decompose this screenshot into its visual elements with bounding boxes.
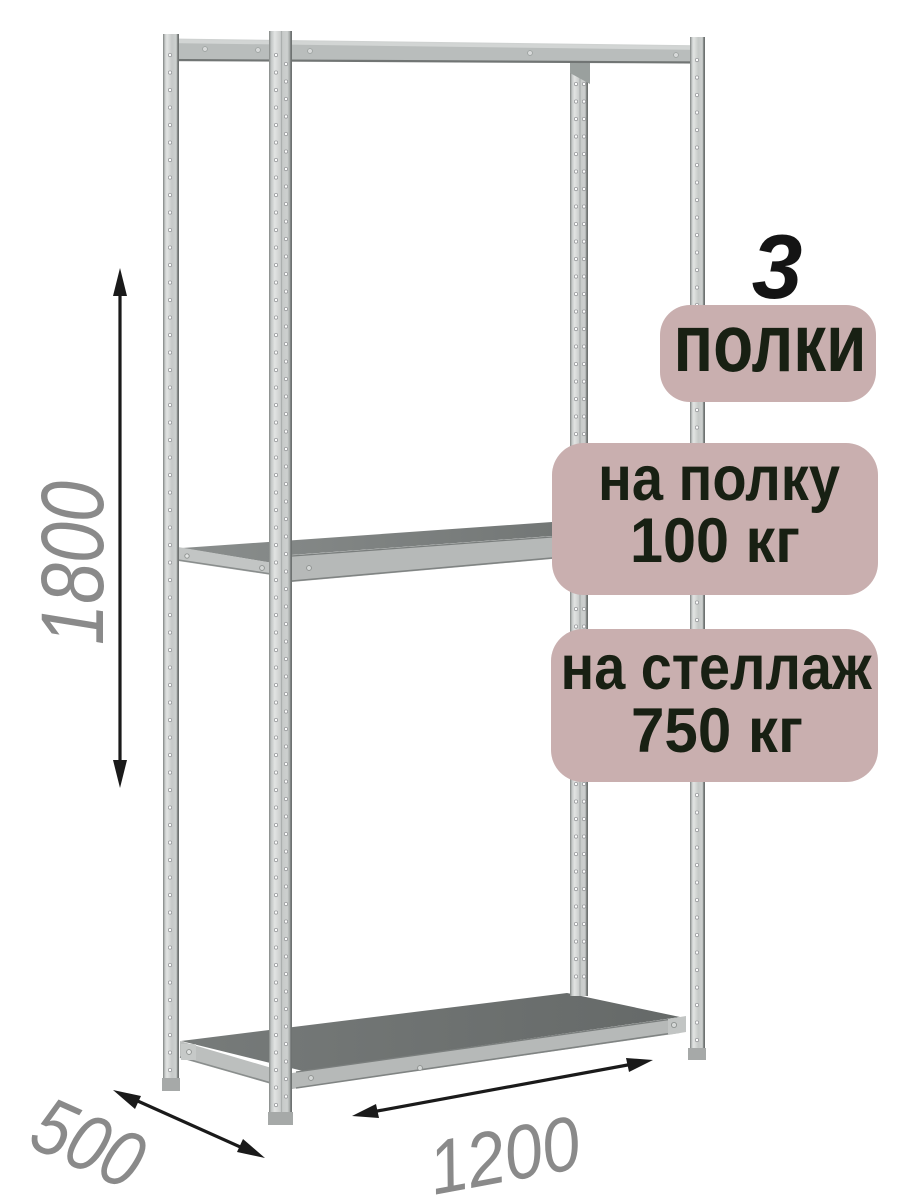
svg-text:на стеллаж: на стеллаж: [561, 633, 873, 703]
svg-text:полки: полки: [674, 298, 867, 389]
svg-text:1800: 1800: [22, 481, 122, 645]
svg-text:на полку: на полку: [598, 444, 840, 514]
svg-text:750 кг: 750 кг: [631, 696, 803, 766]
svg-text:100 кг: 100 кг: [630, 506, 800, 576]
